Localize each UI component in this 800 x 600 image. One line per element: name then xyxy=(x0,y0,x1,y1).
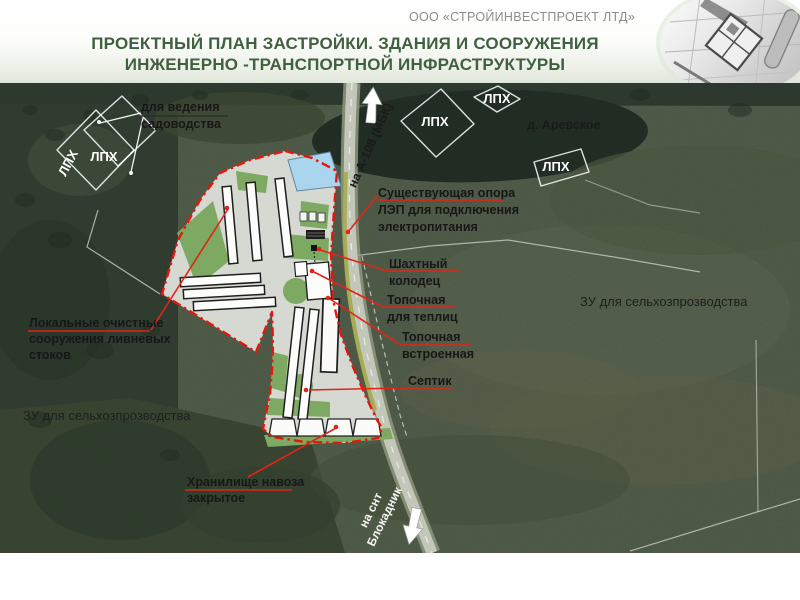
label-treatment-3: стоков xyxy=(29,348,71,362)
label-well-1: Шахтный xyxy=(389,257,448,271)
slide-title-line1: ПРОЕКТНЫЙ ПЛАН ЗАСТРОЙКИ. ЗДАНИЯ И СООРУ… xyxy=(40,33,650,54)
site-map-svg: для ведения садоводства ЛПХ ЛПХ ЛПХ ЛПХ … xyxy=(0,83,800,553)
site-map: для ведения садоводства ЛПХ ЛПХ ЛПХ ЛПХ … xyxy=(0,83,800,553)
label-zu-left: ЗУ для сельхозпрозводства xyxy=(23,408,191,423)
label-well-2: колодец xyxy=(389,274,441,288)
label-boiler-bi-2: встроенная xyxy=(402,347,474,361)
label-boiler-bi-1: Топочная xyxy=(402,330,460,344)
label-septic: Септик xyxy=(408,374,452,388)
label-lpx-3: ЛПХ xyxy=(483,91,510,106)
company-name: ООО «СТРОЙИНВЕСТПРОЕКТ ЛТД» xyxy=(409,10,635,24)
slide-footer: 11 xyxy=(0,553,800,600)
label-gardening-2: садоводства xyxy=(141,117,222,131)
label-lpx-4: ЛПХ xyxy=(542,159,569,174)
label-manure-2: закрытое xyxy=(187,491,245,505)
label-village: д. Аревское xyxy=(527,118,601,132)
label-boiler-gh-2: для теплиц xyxy=(387,310,458,324)
slide: ООО «СТРОЙИНВЕСТПРОЕКТ ЛТД» ПРОЕКТНЫЙ ПЛ… xyxy=(0,0,800,600)
label-power-1: Существующая опора xyxy=(378,186,516,200)
label-treatment-2: сооружения ливневых xyxy=(29,332,171,346)
slide-header: ООО «СТРОЙИНВЕСТПРОЕКТ ЛТД» ПРОЕКТНЫЙ ПЛ… xyxy=(0,0,800,83)
label-manure-1: Хранилище навоза xyxy=(187,475,305,489)
label-lpx-1: ЛПХ xyxy=(90,149,117,164)
slide-title-line2: ИНЖЕНЕРНО -ТРАНСПОРТНОЙ ИНФРАСТРУКТУРЫ xyxy=(40,54,650,75)
label-power-3: электропитания xyxy=(378,220,478,234)
label-treatment-1: Локальные очистные xyxy=(29,316,163,330)
label-gardening-1: для ведения xyxy=(141,100,220,114)
blueprint-photo xyxy=(660,0,800,94)
blueprint-art xyxy=(660,0,800,94)
label-boiler-gh-1: Топочная xyxy=(387,293,445,307)
slide-title: ПРОЕКТНЫЙ ПЛАН ЗАСТРОЙКИ. ЗДАНИЯ И СООРУ… xyxy=(40,33,650,75)
label-zu-right: ЗУ для сельхозпрозводства xyxy=(580,294,748,309)
label-lpx-2: ЛПХ xyxy=(421,114,448,129)
label-power-2: ЛЭП для подключения xyxy=(378,203,519,217)
